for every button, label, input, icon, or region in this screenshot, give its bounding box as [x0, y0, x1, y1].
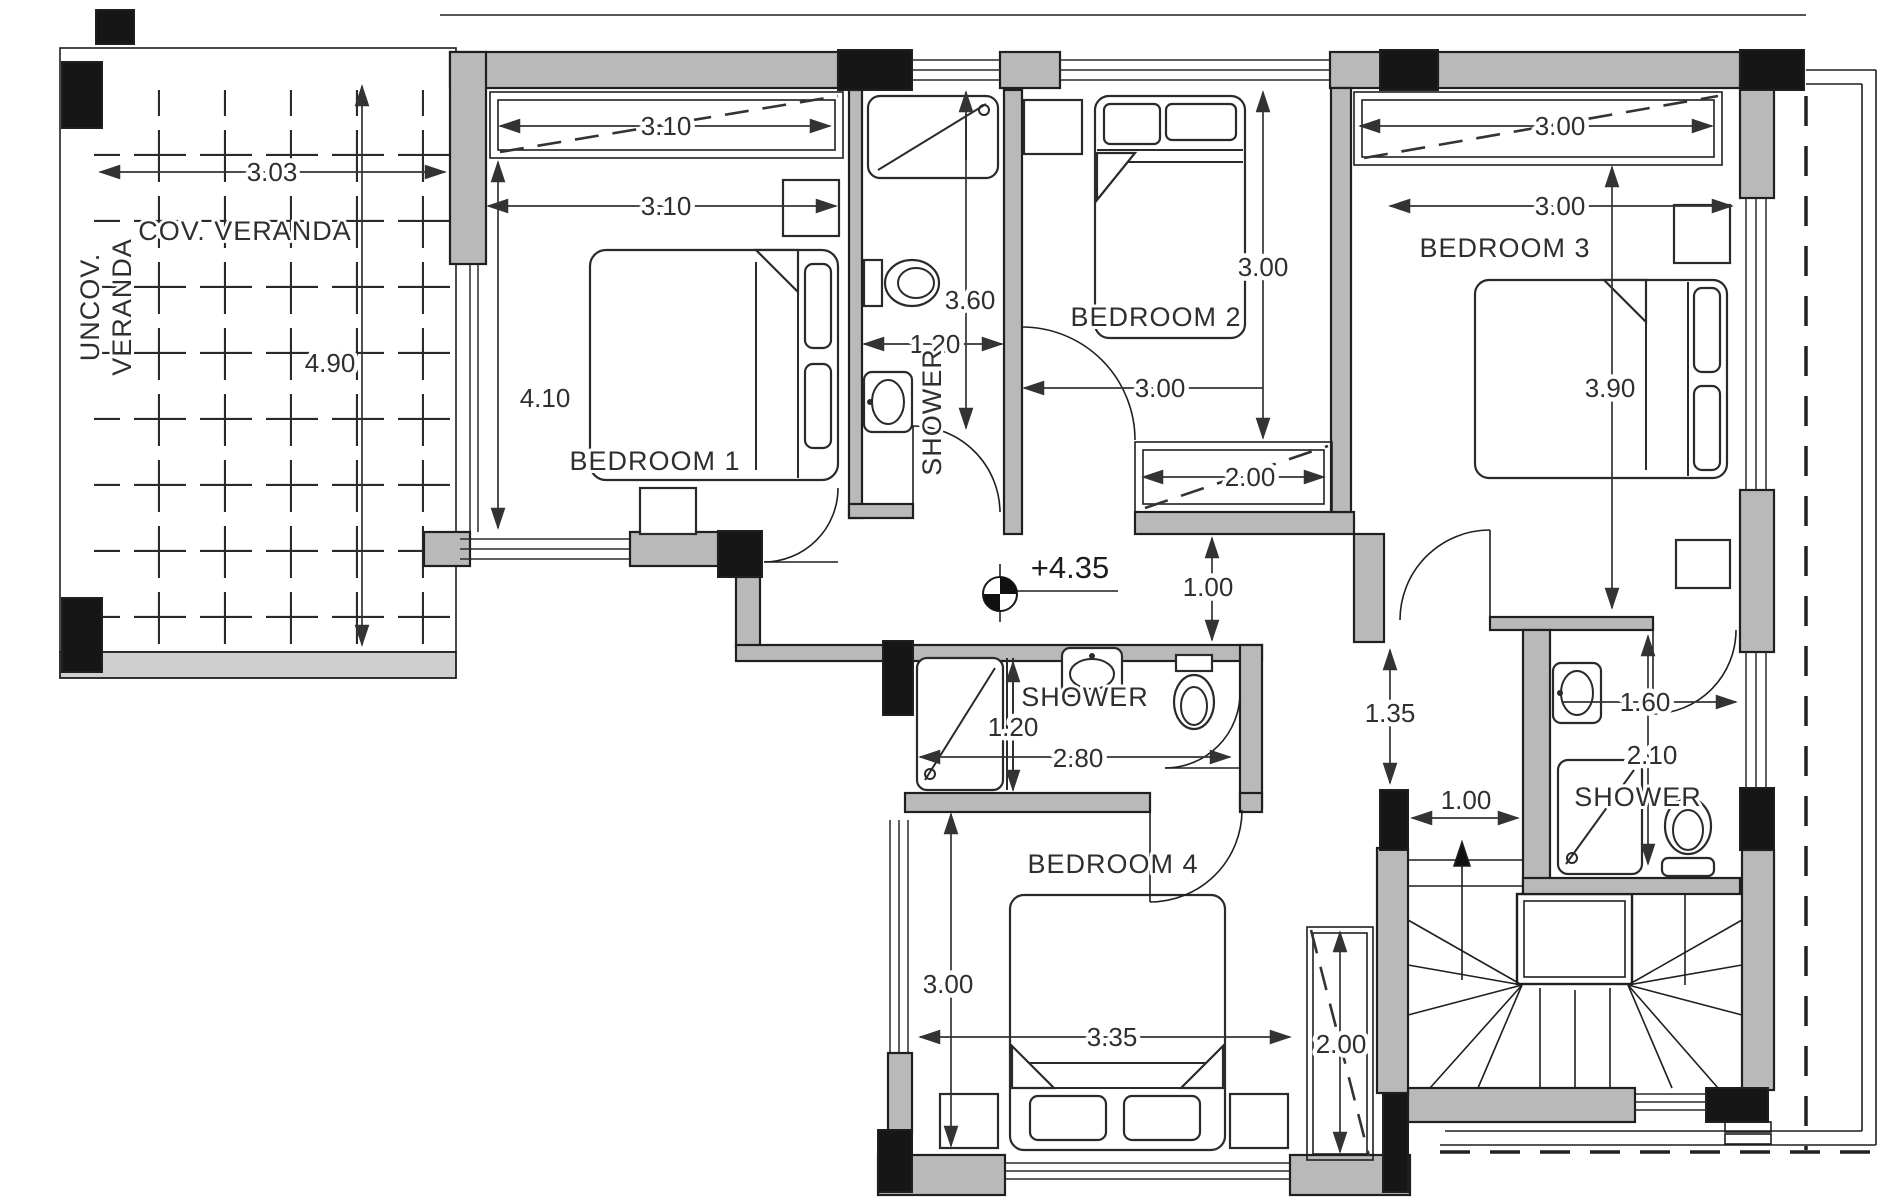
floor-plan-drawing: +4.35 3.03 4.90 3.10 3.10 4.10 3.60 1.20… [0, 0, 1894, 1200]
dim-bedroom3-width: 3.00 [1535, 191, 1586, 221]
dim-veranda-depth: 4.90 [305, 348, 356, 378]
label-shower-right: SHOWER [1574, 782, 1702, 812]
dim-bedroom3-depth: 3.90 [1585, 373, 1636, 403]
dim-bedroom1-width: 3.10 [641, 191, 692, 221]
dim-bedroom4-wardrobe: 2.00 [1316, 1029, 1367, 1059]
dim-shower-right-width: 1.60 [1620, 687, 1671, 717]
label-uncov-veranda-1: UNCOV. [75, 253, 105, 362]
bedside-table [1676, 540, 1730, 588]
dim-bedroom1-wardrobe: 3.10 [641, 111, 692, 141]
dim-bedroom1-depth: 4.10 [520, 383, 571, 413]
label-cov-veranda: COV. VERANDA [138, 216, 352, 246]
dim-veranda-width: 3.03 [247, 157, 298, 187]
dim-bedroom3-wardrobe: 3.00 [1535, 111, 1586, 141]
dim-stair-landing: 1.00 [1441, 785, 1492, 815]
bedside-table [1024, 100, 1082, 154]
dim-corridor-width: 1.35 [1365, 698, 1416, 728]
label-shower-top: SHOWER [917, 348, 947, 476]
bedside-table [1674, 205, 1730, 263]
veranda-edge-band [60, 652, 456, 678]
dim-shower-right-depth: 2.10 [1627, 740, 1678, 770]
label-bedroom2: BEDROOM 2 [1070, 302, 1241, 332]
bedside-table [640, 488, 696, 534]
label-shower-middle: SHOWER [1021, 682, 1149, 712]
dim-bedroom2-depth: 3.00 [1238, 252, 1289, 282]
dim-bedroom2-width: 3.00 [1135, 373, 1186, 403]
bedside-table [783, 180, 839, 236]
dim-hall-opening: 1.00 [1183, 572, 1234, 602]
dim-shower-middle-width: 2.80 [1053, 743, 1104, 773]
dim-bedroom2-wardrobe: 2.00 [1225, 462, 1276, 492]
label-uncov-veranda-2: VERANDA [107, 238, 137, 376]
label-bedroom4: BEDROOM 4 [1027, 849, 1198, 879]
level-value: +4.35 [1031, 550, 1109, 585]
toilet [1176, 655, 1212, 671]
bedside-table [940, 1094, 998, 1148]
dim-bedroom4-width: 3.35 [1087, 1022, 1138, 1052]
bedside-table [1230, 1094, 1288, 1148]
dim-shower-middle-tray: 1.20 [988, 712, 1039, 742]
dim-bedroom4-depth: 3.00 [923, 969, 974, 999]
toilet [864, 260, 882, 306]
label-bedroom1: BEDROOM 1 [569, 446, 740, 476]
label-bedroom3: BEDROOM 3 [1419, 233, 1590, 263]
dim-shower-top-depth: 3.60 [945, 285, 996, 315]
floor-plan-page: +4.35 3.03 4.90 3.10 3.10 4.10 3.60 1.20… [0, 0, 1894, 1200]
